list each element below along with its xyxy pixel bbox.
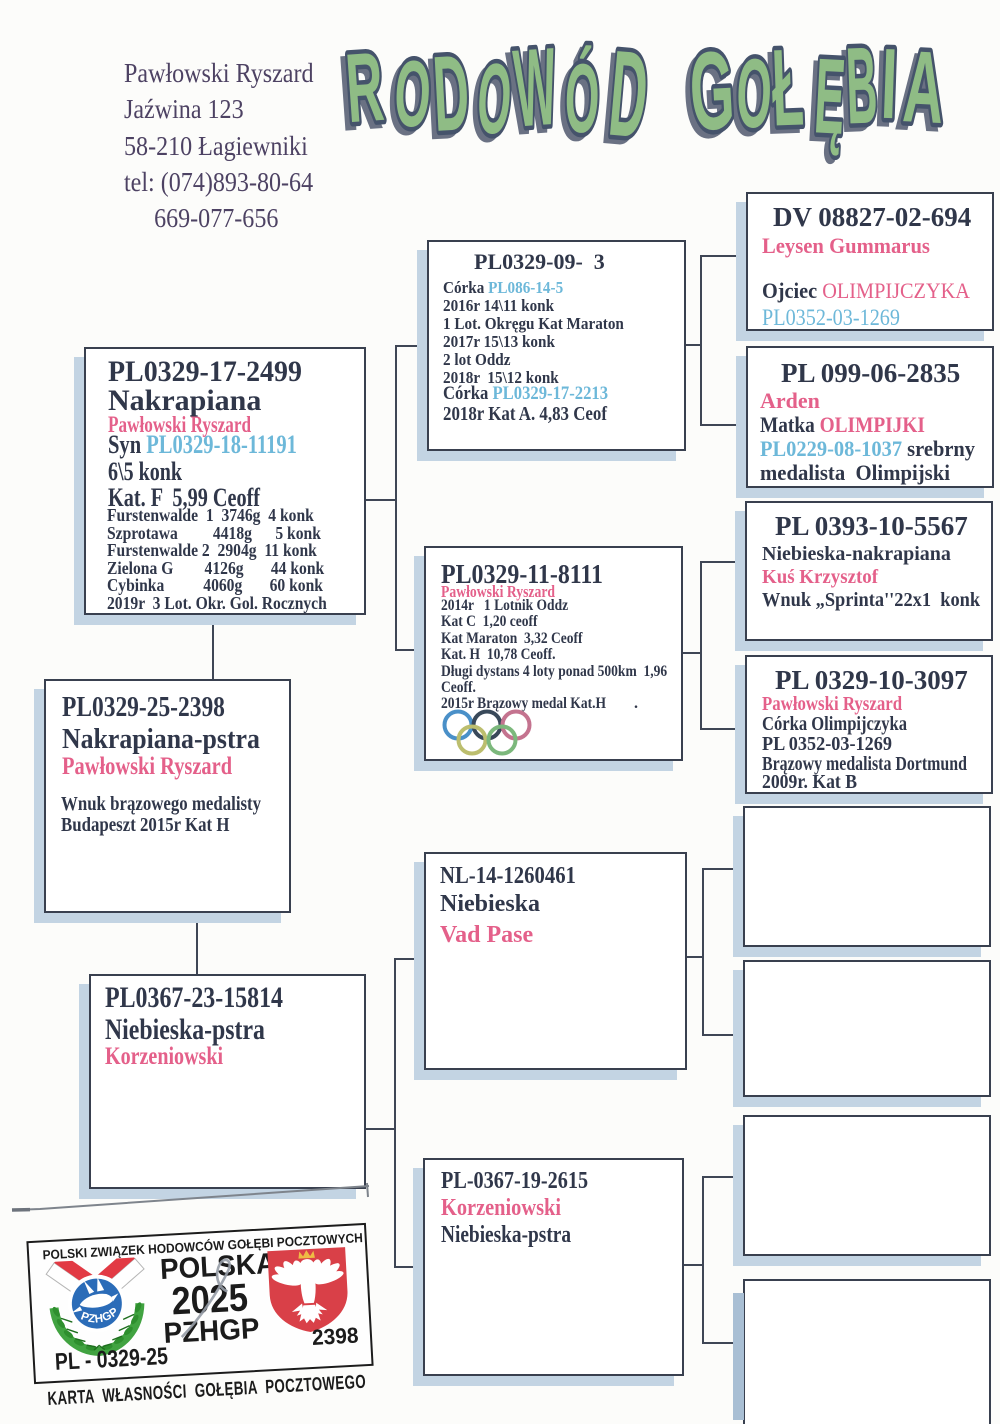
svg-text:Ł: Ł [770,27,806,150]
svg-text:O: O [735,39,774,149]
svg-text:Ę: Ę [812,37,848,157]
svg-text:G: G [687,27,737,154]
svg-text:I: I [879,28,899,140]
svg-text:O: O [392,40,433,147]
svg-text:R: R [342,31,386,144]
svg-text:Ó: Ó [563,44,601,155]
svg-text:D: D [430,33,472,154]
svg-text:A: A [901,29,947,145]
svg-text:W: W [510,24,560,150]
svg-text:B: B [844,24,879,148]
svg-text:O: O [474,42,515,156]
